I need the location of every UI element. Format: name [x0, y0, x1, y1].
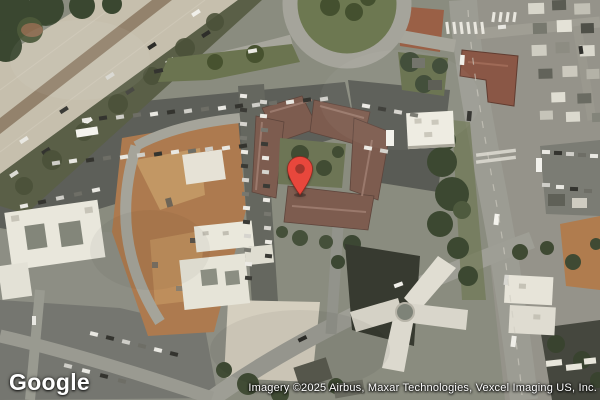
map-attribution: Imagery ©2025 Airbus, Maxar Technologies… — [248, 382, 597, 394]
location-marker-icon[interactable] — [286, 155, 314, 197]
pin-body — [288, 157, 313, 196]
satellite-map-canvas[interactable]: Google Imagery ©2025 Airbus, Maxar Techn… — [0, 0, 600, 400]
pin-inner-dot — [295, 164, 305, 174]
satellite-imagery — [0, 0, 600, 400]
google-logo[interactable]: Google — [9, 369, 90, 396]
